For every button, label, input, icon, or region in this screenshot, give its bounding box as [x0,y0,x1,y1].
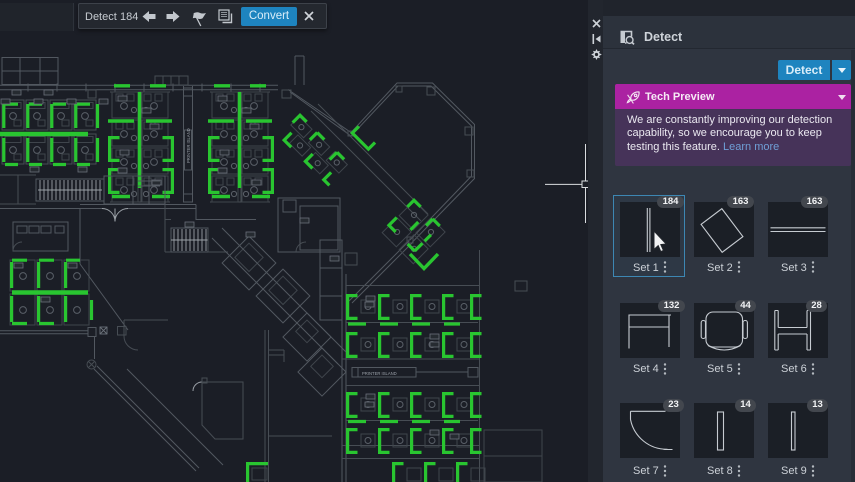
svg-text:PRINTER ISLAND: PRINTER ISLAND [186,128,191,163]
svg-text:PRINTER ISLAND: PRINTER ISLAND [362,371,397,376]
